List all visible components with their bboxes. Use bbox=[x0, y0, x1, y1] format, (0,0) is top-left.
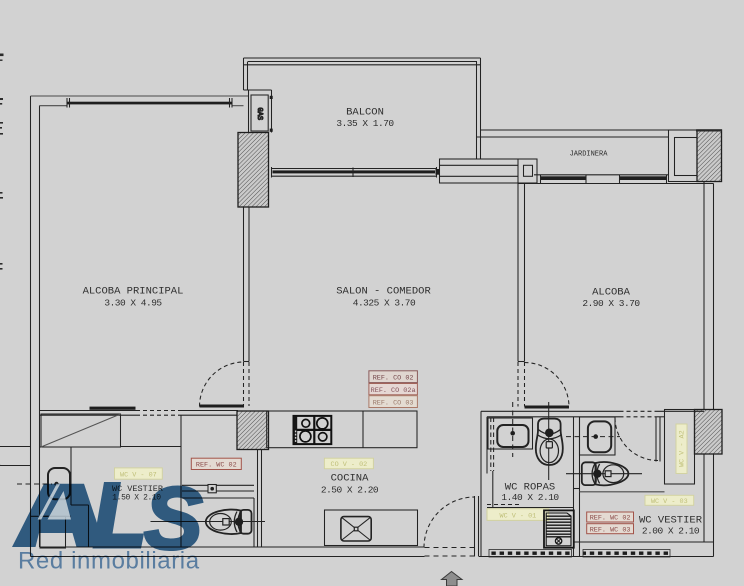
svg-text:SALON - COMEDOR: SALON - COMEDOR bbox=[336, 286, 431, 298]
svg-text:WC V - 01: WC V - 01 bbox=[500, 512, 537, 520]
svg-text:REF. CO 03: REF. CO 03 bbox=[373, 399, 414, 407]
svg-text:ALCOBA: ALCOBA bbox=[592, 287, 631, 299]
svg-text:Red inmobiliaria: Red inmobiliaria bbox=[18, 548, 200, 575]
svg-text:JARDINERA: JARDINERA bbox=[570, 151, 609, 159]
svg-text:2.90 X 3.70: 2.90 X 3.70 bbox=[582, 298, 640, 309]
svg-text:CO V - 02: CO V - 02 bbox=[331, 461, 368, 469]
svg-text:GAS: GAS bbox=[255, 108, 263, 121]
svg-text:REF. WC 03: REF. WC 03 bbox=[590, 526, 631, 534]
svg-text:WC V - A2: WC V - A2 bbox=[679, 430, 687, 467]
svg-text:4.325 X 3.70: 4.325 X 3.70 bbox=[353, 298, 416, 309]
svg-text:REF. CO 02: REF. CO 02 bbox=[373, 375, 414, 383]
svg-text:3.35 X 1.70: 3.35 X 1.70 bbox=[336, 118, 394, 129]
svg-text:1.40 X 2.10: 1.40 X 2.10 bbox=[501, 492, 559, 503]
svg-text:5: 5 bbox=[0, 393, 1, 405]
svg-text:ALCOBA PRINCIPAL: ALCOBA PRINCIPAL bbox=[83, 286, 184, 298]
svg-text:3.30 X 4.95: 3.30 X 4.95 bbox=[104, 298, 162, 309]
svg-text:REF. WC 02: REF. WC 02 bbox=[590, 515, 631, 523]
svg-text:2.00 X 2.10: 2.00 X 2.10 bbox=[642, 526, 700, 537]
svg-text:BALCON: BALCON bbox=[346, 107, 384, 119]
svg-text:WC V - 03: WC V - 03 bbox=[651, 498, 688, 506]
svg-text:REF. CO 02a: REF. CO 02a bbox=[371, 387, 416, 395]
svg-text:COCINA: COCINA bbox=[331, 473, 370, 485]
svg-text:2.50 X 2.20: 2.50 X 2.20 bbox=[321, 485, 379, 496]
